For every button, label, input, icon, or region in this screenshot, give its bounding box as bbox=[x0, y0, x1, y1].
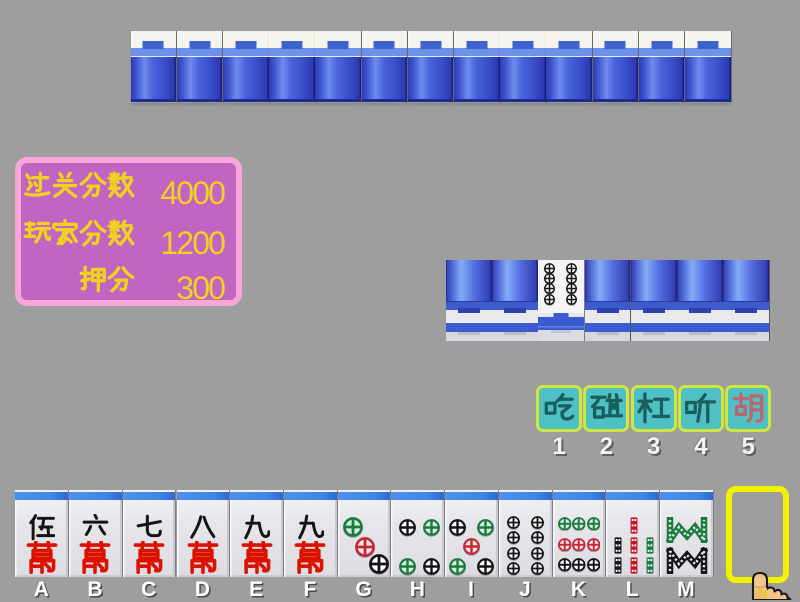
svg-text:N: N bbox=[757, 586, 769, 600]
